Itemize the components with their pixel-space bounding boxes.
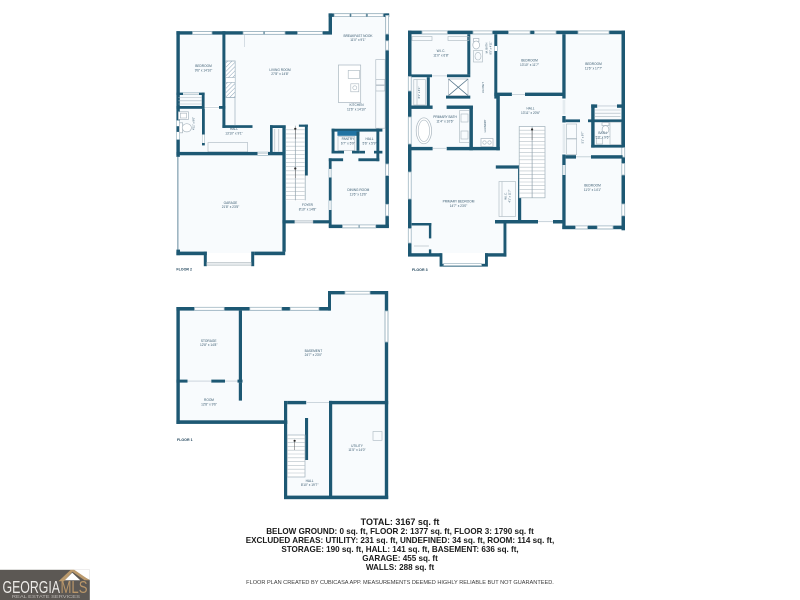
svg-text:BASEMENT: BASEMENT (305, 349, 323, 353)
svg-text:11'0" x 6'8": 11'0" x 6'8" (433, 53, 448, 57)
svg-text:BEDROOM: BEDROOM (521, 59, 538, 63)
svg-text:PRIMARY BATH: PRIMARY BATH (433, 115, 457, 119)
svg-text:DINING ROOM: DINING ROOM (347, 188, 369, 192)
svg-text:4'1" x 11'7": 4'1" x 11'7" (508, 189, 512, 202)
svg-text:LAUNDRY: LAUNDRY (483, 119, 487, 132)
svg-text:BREAKFAST NOOK: BREAKFAST NOOK (344, 34, 374, 38)
svg-text:EXCLUDED AREAS: UTILITY: 231 s: EXCLUDED AREAS: UTILITY: 231 sq. ft, UND… (246, 536, 555, 545)
svg-text:21'8" x 23'5": 21'8" x 23'5" (222, 205, 239, 209)
svg-text:W.I.C.: W.I.C. (504, 192, 508, 200)
svg-text:13'10" x 9'1": 13'10" x 9'1" (225, 131, 242, 135)
svg-text:HALL: HALL (306, 479, 314, 483)
svg-text:12'8" x 9'6": 12'8" x 9'6" (201, 403, 217, 407)
svg-text:CLOSET: CLOSET (481, 82, 485, 93)
svg-text:BEDROOM: BEDROOM (584, 184, 601, 188)
svg-text:W.I.C.: W.I.C. (437, 49, 446, 53)
svg-text:27'8" x 14'8": 27'8" x 14'8" (271, 72, 288, 76)
svg-text:11'4" x 10'6": 11'4" x 10'6" (436, 120, 453, 124)
svg-text:BEDROOM: BEDROOM (195, 64, 212, 68)
svg-text:M. BATH: M. BATH (485, 43, 489, 54)
svg-text:FLOOR 2: FLOOR 2 (176, 268, 192, 272)
svg-text:FLOOR 3: FLOOR 3 (412, 268, 428, 272)
svg-text:11'6" x 14'10": 11'6" x 14'10" (347, 107, 366, 111)
svg-text:PRIMARY BEDROOM: PRIMARY BEDROOM (443, 200, 475, 204)
svg-text:13'10" x 11'7": 13'10" x 11'7" (520, 63, 539, 67)
svg-text:UTILITY: UTILITY (351, 444, 364, 448)
svg-text:11'5" x 14'0": 11'5" x 14'0" (348, 448, 365, 452)
svg-text:5'6" x 5'9": 5'6" x 5'9" (363, 141, 377, 145)
svg-text:GARAGE: GARAGE (224, 201, 238, 205)
svg-text:BELOW GROUND: 0 sq. ft, FLOOR: BELOW GROUND: 0 sq. ft, FLOOR 2: 1377 sq… (266, 527, 534, 536)
svg-text:11'6" x 17'7": 11'6" x 17'7" (585, 66, 602, 70)
svg-text:WALLS: 288 sq. ft: WALLS: 288 sq. ft (366, 563, 435, 572)
svg-text:4'11" x 9'0": 4'11" x 9'0" (192, 117, 196, 130)
svg-text:STORAGE: STORAGE (201, 339, 217, 343)
svg-text:KITCHEN: KITCHEN (350, 103, 365, 107)
svg-text:8'10" x 19'7": 8'10" x 19'7" (301, 483, 318, 487)
svg-text:11'0" x 14'1": 11'0" x 14'1" (584, 188, 601, 192)
svg-text:REAL ESTATE SERVICES: REAL ESTATE SERVICES (12, 594, 80, 599)
svg-text:BATH: BATH (598, 131, 607, 135)
svg-text:11'6" x 13'6": 11'6" x 13'6" (350, 193, 367, 197)
svg-text:HALL: HALL (527, 107, 535, 111)
svg-text:FOYER: FOYER (302, 203, 314, 207)
svg-text:TOTAL: 3167 sq. ft: TOTAL: 3167 sq. ft (361, 517, 440, 527)
svg-text:8'5" x 4'11": 8'5" x 4'11" (489, 41, 493, 54)
svg-text:5'1" x 9'7": 5'1" x 9'7" (581, 132, 585, 144)
svg-text:STORAGE: 190 sq. ft, HALL: 141: STORAGE: 190 sq. ft, HALL: 141 sq. ft, B… (281, 545, 518, 554)
svg-text:LIVING ROOM: LIVING ROOM (269, 68, 291, 72)
svg-text:11'0" x 9'1": 11'0" x 9'1" (350, 38, 365, 42)
svg-text:6'1" x 4'1": 6'1" x 4'1" (417, 87, 421, 99)
svg-text:ROOM: ROOM (204, 398, 214, 402)
svg-text:8'10" x 14'8": 8'10" x 14'8" (299, 207, 316, 211)
svg-text:HALL: HALL (230, 127, 238, 131)
svg-text:FLOOR PLAN CREATED BY CUBICASA: FLOOR PLAN CREATED BY CUBICASA APP. MEAS… (246, 580, 554, 586)
svg-text:9'6" x 14'10": 9'6" x 14'10" (195, 68, 212, 72)
svg-text:FLOOR 1: FLOOR 1 (177, 438, 193, 442)
svg-text:12'8" x 14'8": 12'8" x 14'8" (200, 343, 217, 347)
svg-text:14'7" x 23'0": 14'7" x 23'0" (450, 204, 467, 208)
svg-text:13'11" x 20'6": 13'11" x 20'6" (521, 111, 540, 115)
svg-text:GARAGE: 455 sq. ft: GARAGE: 455 sq. ft (362, 554, 438, 563)
svg-text:24'7" x 23'0": 24'7" x 23'0" (305, 353, 322, 357)
svg-text:BEDROOM: BEDROOM (585, 62, 602, 66)
svg-text:5'0" x 9'6": 5'0" x 9'6" (596, 135, 610, 139)
svg-text:6'7" x 5'9": 6'7" x 5'9" (341, 141, 355, 145)
